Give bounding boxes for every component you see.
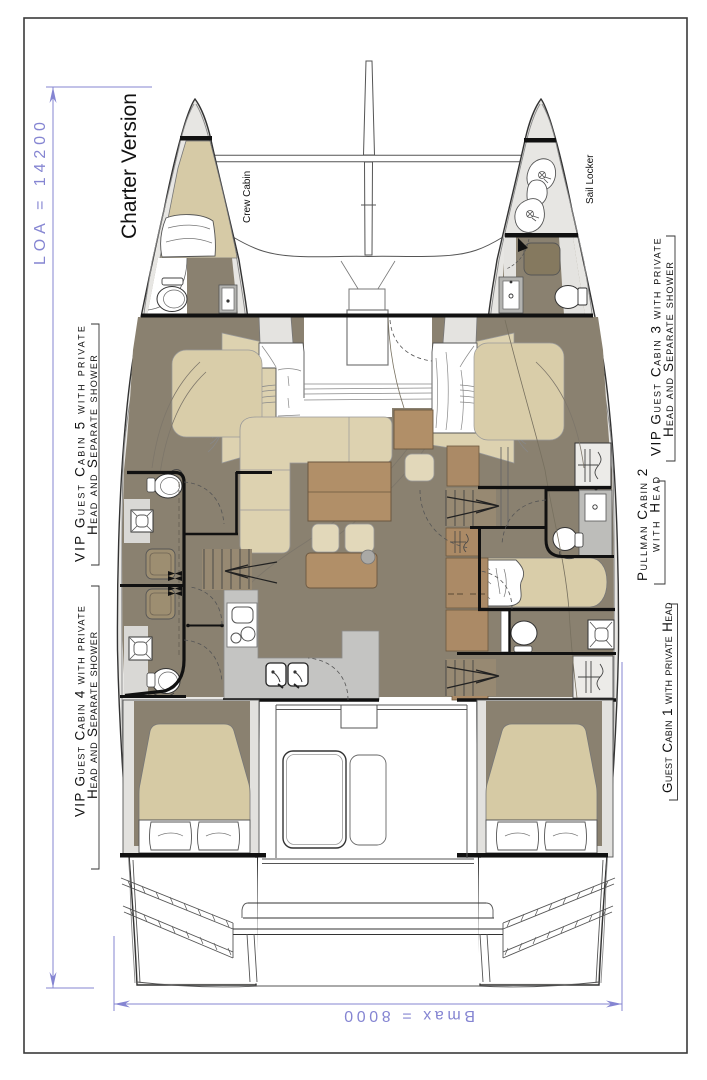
svg-text:Sail Locker: Sail Locker bbox=[585, 154, 596, 204]
svg-text:with Head: with Head bbox=[648, 475, 663, 553]
svg-text:Bmax = 8000: Bmax = 8000 bbox=[341, 1007, 475, 1024]
svg-text:Guest Cabin 1 with private Hea: Guest Cabin 1 with private Head bbox=[660, 602, 675, 793]
svg-text:Head and Separate shower: Head and Separate shower bbox=[85, 354, 100, 535]
svg-text:Head and Separate shower: Head and Separate shower bbox=[661, 261, 676, 437]
svg-text:Crew Cabin: Crew Cabin bbox=[242, 171, 253, 223]
svg-text:LOA = 14200: LOA = 14200 bbox=[32, 117, 49, 265]
svg-text:Head and Separate shower: Head and Separate shower bbox=[85, 631, 100, 799]
svg-text:Charter Version: Charter Version bbox=[118, 93, 141, 239]
